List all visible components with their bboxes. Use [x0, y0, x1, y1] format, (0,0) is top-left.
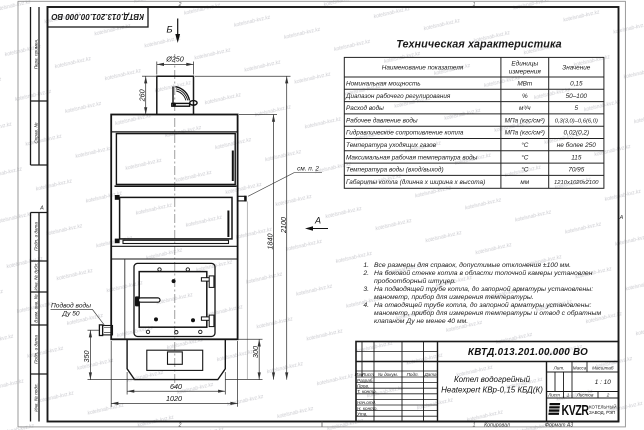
svg-text:640: 640 [170, 382, 182, 391]
svg-text:Формат А3: Формат А3 [545, 423, 573, 429]
svg-text:№ докум.: № докум. [378, 372, 398, 377]
svg-text:манометр, прибор для измерения: манометр, прибор для измерения температу… [374, 309, 602, 317]
svg-text:Подвод воды: Подвод воды [51, 302, 91, 310]
svg-text:Масштаб: Масштаб [592, 366, 614, 371]
svg-text:Подп. и дата: Подп. и дата [34, 335, 39, 364]
svg-text:1.: 1. [363, 262, 369, 269]
svg-text:1020: 1020 [166, 394, 182, 403]
svg-text:1840: 1840 [266, 234, 275, 250]
svg-text:Номинальная мощность: Номинальная мощность [346, 81, 421, 88]
svg-text:2: 2 [606, 393, 610, 398]
svg-text:2: 2 [178, 422, 182, 428]
svg-text:ЗАВОД, РЭП: ЗАВОД, РЭП [589, 410, 615, 415]
svg-text:Температура воды (вход/выход): Температура воды (вход/выход) [346, 166, 444, 174]
svg-text:50–100: 50–100 [566, 93, 588, 100]
svg-text:70/95: 70/95 [568, 167, 584, 174]
svg-text:Перв. примен.: Перв. примен. [34, 39, 39, 70]
svg-text:Масса: Масса [573, 366, 587, 371]
svg-text:Инв. № дубл.: Инв. № дубл. [34, 262, 39, 290]
svg-text:МПа (кгс/см²): МПа (кгс/см²) [505, 117, 545, 124]
svg-text:0,15: 0,15 [570, 81, 583, 88]
svg-text:КВТД.013.201.00.000 ВО: КВТД.013.201.00.000 ВО [468, 347, 588, 358]
svg-text:м³/ч: м³/ч [519, 105, 531, 112]
svg-text:1: 1 [473, 2, 476, 8]
svg-text:Подп. и дата: Подп. и дата [34, 222, 39, 251]
svg-text:Взам. инв. №: Взам. инв. № [34, 294, 39, 322]
svg-text:Пров.: Пров. [357, 383, 369, 388]
svg-text:Значение: Значение [562, 65, 590, 72]
svg-text:115: 115 [571, 154, 582, 161]
svg-text:Все размеры для справок, допус: Все размеры для справок, допустимые откл… [374, 261, 571, 269]
svg-text:Гидравлическое сопротивление к: Гидравлическое сопротивление котла [346, 129, 464, 137]
svg-text:Нач.отд.: Нач.отд. [357, 400, 376, 405]
svg-text:°С: °С [521, 141, 529, 149]
svg-text:Т. контр.: Т. контр. [357, 389, 377, 394]
svg-text:°С: °С [521, 153, 529, 161]
svg-text:0,02(0,2): 0,02(0,2) [564, 130, 590, 137]
svg-text:МПа (кгс/см²): МПа (кгс/см²) [505, 130, 545, 137]
svg-text:1: 1 [473, 422, 476, 428]
svg-text:Максимальная рабочая температу: Максимальная рабочая температура воды [346, 153, 478, 161]
svg-text:Диапазон рабочего регулировани: Диапазон рабочего регулирования [345, 92, 451, 100]
svg-text:Утв.: Утв. [357, 411, 367, 416]
svg-text:300: 300 [251, 346, 260, 358]
svg-text:На боковой стенке котла в обла: На боковой стенке котла в области топочн… [374, 269, 593, 277]
svg-text:0,3(3,0)–0,6(6,0): 0,3(3,0)–0,6(6,0) [555, 118, 598, 124]
svg-text:5: 5 [575, 105, 579, 112]
svg-text:%: % [522, 93, 528, 100]
svg-text:Копировал: Копировал [484, 423, 510, 429]
svg-text:°С: °С [521, 166, 529, 174]
svg-text:350: 350 [82, 351, 91, 363]
svg-text:Габариты котла (длинна х ширин: Габариты котла (длинна х ширина х высота… [346, 178, 485, 186]
svg-text:KVZR: KVZR [562, 402, 589, 418]
svg-text:260: 260 [138, 89, 147, 102]
svg-text:На отводящей трубе котла, до з: На отводящей трубе котла, до запорной ар… [374, 301, 591, 309]
svg-text:МВт: МВт [517, 81, 533, 88]
svg-text:1210х1020х2100: 1210х1020х2100 [554, 180, 599, 186]
svg-text:А: А [619, 215, 624, 221]
svg-text:КВТД.013.201.00.000 ВО: КВТД.013.201.00.000 ВО [51, 12, 144, 21]
svg-text:А: А [314, 216, 321, 226]
svg-text:1 : 10: 1 : 10 [595, 379, 611, 386]
svg-text:4.: 4. [363, 302, 369, 309]
svg-text:2100: 2100 [279, 217, 288, 234]
svg-text:КОТЕЛЬНЫЙ: КОТЕЛЬНЫЙ [589, 405, 617, 410]
svg-text:пробоотборный штуцер.: пробоотборный штуцер. [374, 277, 456, 285]
svg-text:манометр, прибор для измерения: манометр, прибор для измерения температу… [374, 293, 534, 301]
svg-text:1: 1 [567, 393, 570, 398]
svg-text:Листов: Листов [576, 393, 594, 398]
svg-text:клапаном Ду не менее 40 мм.: клапаном Ду не менее 40 мм. [374, 318, 468, 325]
svg-text:Температура уходящих газов: Температура уходящих газов [346, 141, 437, 149]
svg-text:Наименование показателя: Наименование показателя [382, 65, 464, 72]
svg-text:Лист: Лист [547, 393, 560, 398]
svg-text:Лист: Лист [361, 372, 374, 377]
svg-text:Лит.: Лит. [553, 366, 565, 371]
svg-text:2: 2 [178, 2, 182, 8]
svg-text:Справ. №: Справ. № [34, 123, 39, 144]
svg-text:Дата: Дата [423, 372, 437, 377]
svg-text:измерения: измерения [509, 69, 542, 76]
svg-text:Подп.: Подп. [407, 372, 419, 377]
svg-text:А: А [39, 206, 44, 212]
svg-text:Ø250: Ø250 [165, 54, 184, 63]
svg-text:На подводящей трубе котла, до: На подводящей трубе котла, до запорной а… [374, 285, 593, 293]
svg-text:Расход воды: Расход воды [346, 104, 384, 112]
svg-text:Техническая характеристика: Техническая характеристика [396, 39, 562, 51]
svg-text:3.: 3. [363, 286, 369, 293]
svg-text:Разраб.: Разраб. [357, 378, 374, 383]
svg-text:Инв. № подл.: Инв. № подл. [34, 383, 39, 412]
svg-text:Ду 50: Ду 50 [61, 311, 80, 318]
svg-text:Б: Б [166, 25, 172, 36]
svg-text:Котел водогрейный: Котел водогрейный [454, 375, 531, 384]
svg-text:см. п. 2: см. п. 2 [297, 166, 319, 173]
svg-text:мм: мм [520, 179, 529, 186]
svg-text:Heatexpert КВр-0,15 КБД(К): Heatexpert КВр-0,15 КБД(К) [441, 386, 543, 395]
svg-text:Н. контр.: Н. контр. [357, 406, 378, 411]
svg-text:Рабочее давление воды: Рабочее давление воды [346, 116, 418, 124]
svg-text:2.: 2. [362, 270, 369, 277]
svg-text:Единицы: Единицы [511, 60, 538, 68]
svg-text:не более 250: не более 250 [557, 141, 596, 149]
